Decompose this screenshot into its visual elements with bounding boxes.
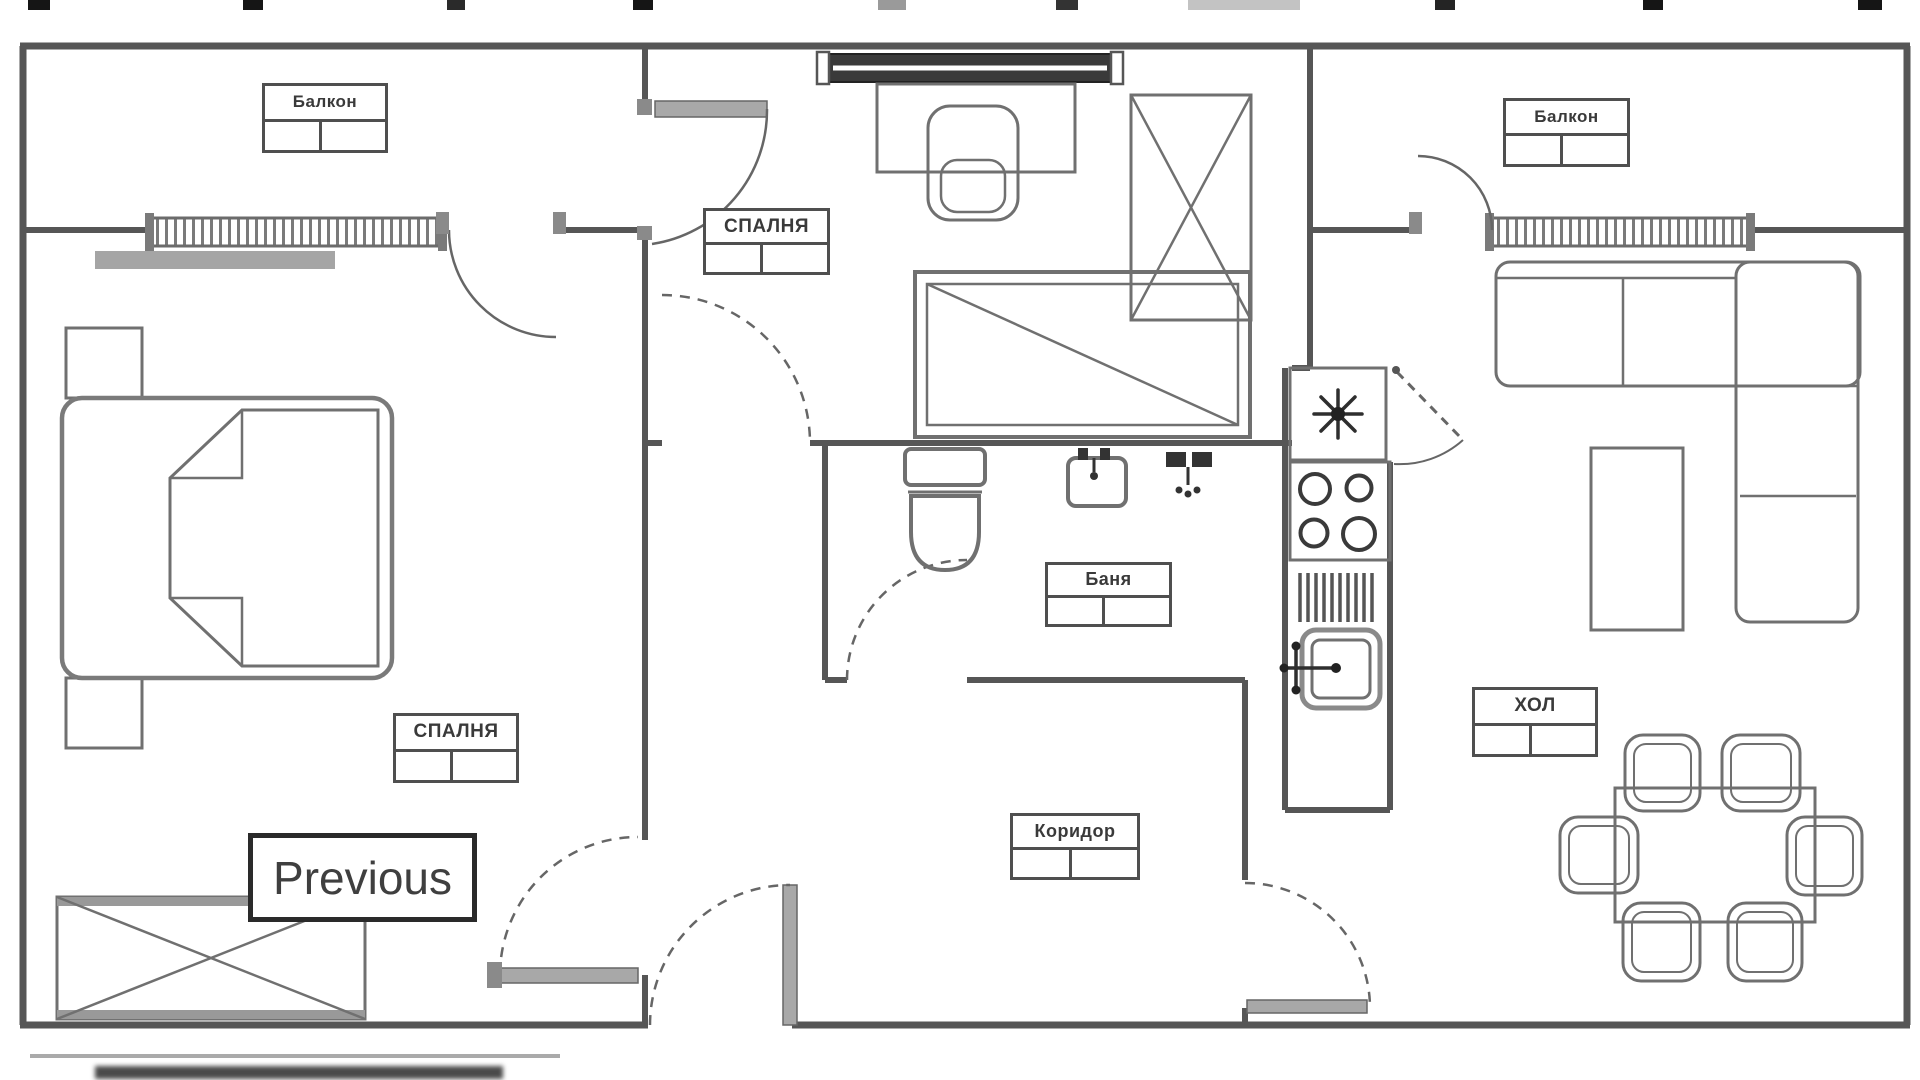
shower-fixture (1166, 452, 1212, 498)
room-label-balcony-right: Балкон (1503, 98, 1630, 167)
window-living-room (1485, 213, 1755, 251)
mid-bedroom-furniture (877, 84, 1251, 437)
room-label-text: СПАЛНЯ (706, 211, 827, 242)
door-balcony-living (1409, 156, 1492, 234)
four-burners-icon (1300, 474, 1375, 550)
kitchen-sink (1280, 630, 1381, 708)
bed-single (915, 272, 1250, 437)
room-label-text: Балкон (1506, 101, 1627, 133)
scan-artifact-text-bar (95, 1066, 503, 1079)
wardrobe-crossed-mid (1131, 95, 1251, 320)
dining-chair (1560, 817, 1638, 893)
bed-sheet (170, 410, 378, 666)
door-living-entry (1245, 883, 1370, 1013)
room-label-text: Коридор (1013, 816, 1137, 847)
dining-set (1560, 735, 1862, 981)
door-left-bedroom-entry (487, 837, 638, 988)
doors (436, 99, 1492, 1025)
coffee-table (1591, 448, 1683, 630)
room-label-bedroom-mid: СПАЛНЯ (703, 208, 830, 275)
dish-drainer (1300, 573, 1372, 622)
room-label-text: ХОЛ (1475, 690, 1595, 723)
dining-chair (1787, 817, 1862, 895)
room-label-bedroom-left: СПАЛНЯ (393, 713, 519, 783)
living-room-furniture (1496, 262, 1862, 981)
door-apartment-entrance (650, 885, 797, 1025)
fridge (1290, 368, 1386, 460)
scan-artifacts-bottom (30, 1054, 560, 1058)
room-label-text: Баня (1048, 565, 1169, 595)
room-label-living-room: ХОЛ (1472, 687, 1598, 757)
kitchen-fixtures (1280, 368, 1391, 708)
window-left-bedroom (145, 213, 447, 251)
radiator-bar (95, 251, 335, 269)
dining-chair (1728, 903, 1802, 981)
corner-sofa (1496, 262, 1860, 622)
dining-chair (1722, 735, 1800, 811)
bed-double (62, 398, 392, 678)
room-label-text: СПАЛНЯ (396, 716, 516, 749)
door-arc-bathroom (847, 560, 967, 680)
window-mid-bedroom (817, 52, 1123, 84)
stove (1290, 462, 1390, 560)
previous-button[interactable]: Previous (248, 833, 477, 922)
door-balcony-left-bedroom (436, 212, 566, 337)
room-label-balcony-left: Балкон (262, 83, 388, 153)
sink-faucet-icon (1284, 646, 1336, 690)
room-label-bathroom: Баня (1045, 562, 1172, 627)
scan-artifacts-top (28, 0, 1882, 10)
desk-chair (928, 106, 1018, 220)
room-label-text: Балкон (265, 86, 385, 119)
dining-chair (1625, 735, 1700, 811)
nightstand-top (66, 328, 142, 398)
nightstand-bottom (66, 678, 142, 748)
door-kitchen (1392, 366, 1463, 464)
door-arc-mid-bedroom-corridor (662, 295, 810, 443)
toilet (905, 449, 985, 570)
room-label-corridor: Коридор (1010, 813, 1140, 880)
washbasin (1068, 448, 1126, 506)
bathroom-fixtures (905, 448, 1212, 570)
floor-plan-page: Балкон СПАЛНЯ Балкон Баня СПАЛНЯ ХОЛ Кор… (0, 0, 1920, 1080)
dining-chair (1623, 903, 1700, 981)
